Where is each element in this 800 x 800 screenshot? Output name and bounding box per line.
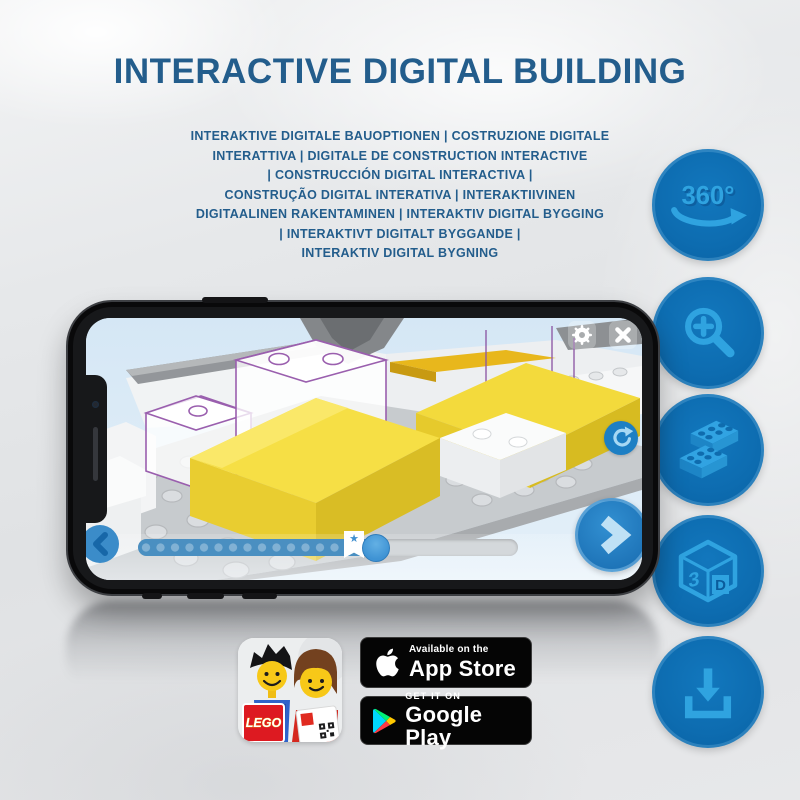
gear-icon	[570, 323, 594, 347]
settings-button[interactable]	[568, 321, 596, 349]
download-icon	[678, 662, 738, 722]
feature-zoom-badge	[652, 277, 764, 389]
rotate-button[interactable]	[604, 421, 638, 455]
rotate-icon	[608, 425, 634, 451]
lego-app-icon: LEGO	[238, 638, 342, 742]
app-store-badge-text: Available on the App Store	[409, 645, 516, 681]
volume-down-button	[242, 593, 277, 599]
zoom-in-icon	[677, 302, 739, 364]
feature-3d-badge: 3 D	[652, 515, 764, 627]
build-progress-slider[interactable]: ★	[138, 539, 518, 556]
app-store-badge[interactable]: Available on the App Store	[360, 637, 532, 688]
svg-text:D: D	[715, 577, 726, 594]
svg-text:3: 3	[688, 568, 699, 592]
volume-up-button	[187, 593, 224, 599]
google-play-badge[interactable]: GET IT ON Google Play	[360, 696, 532, 745]
feature-bricks-badge	[652, 394, 764, 506]
feature-download-badge	[652, 636, 764, 748]
power-button	[202, 297, 268, 303]
apple-icon	[373, 646, 400, 679]
next-button[interactable]	[575, 498, 642, 572]
camera-notch	[86, 375, 107, 523]
google-play-tagline: GET IT ON	[405, 692, 521, 701]
google-play-icon	[373, 707, 396, 735]
speaker-slit	[93, 427, 98, 481]
google-play-badge-text: GET IT ON Google Play	[405, 692, 521, 750]
back-button[interactable]	[86, 525, 119, 563]
app-store-tagline: Available on the	[409, 645, 516, 656]
phone-mockup: ★	[66, 300, 660, 596]
360-rotation-icon: 360° 360°	[667, 175, 749, 235]
close-icon	[611, 323, 635, 347]
page-title: INTERACTIVE DIGITAL BUILDING	[0, 52, 800, 92]
camera-dot	[92, 401, 99, 408]
promo-image: INTERACTIVE DIGITAL BUILDING INTERAKTIVE…	[0, 0, 800, 800]
app-store-name: App Store	[409, 657, 516, 680]
brick-stack-icon	[674, 418, 742, 482]
subtitle-multilingual: INTERAKTIVE DIGITALE BAUOPTIONEN | COSTR…	[110, 127, 690, 264]
google-play-name: Google Play	[405, 703, 521, 749]
phone-screen: ★	[86, 318, 642, 580]
slider-handle[interactable]	[362, 534, 390, 562]
3d-cube-icon: 3 D	[676, 539, 740, 603]
feature-360-badge: 360° 360°	[652, 149, 764, 261]
svg-text:LEGO: LEGO	[246, 716, 282, 730]
chevron-right-icon	[578, 501, 642, 569]
close-button[interactable]	[609, 321, 637, 349]
svg-text:360°: 360°	[682, 182, 735, 210]
chevron-left-icon	[86, 526, 118, 562]
mute-switch	[142, 593, 162, 599]
lego-minifigures-art: LEGO	[238, 638, 342, 742]
